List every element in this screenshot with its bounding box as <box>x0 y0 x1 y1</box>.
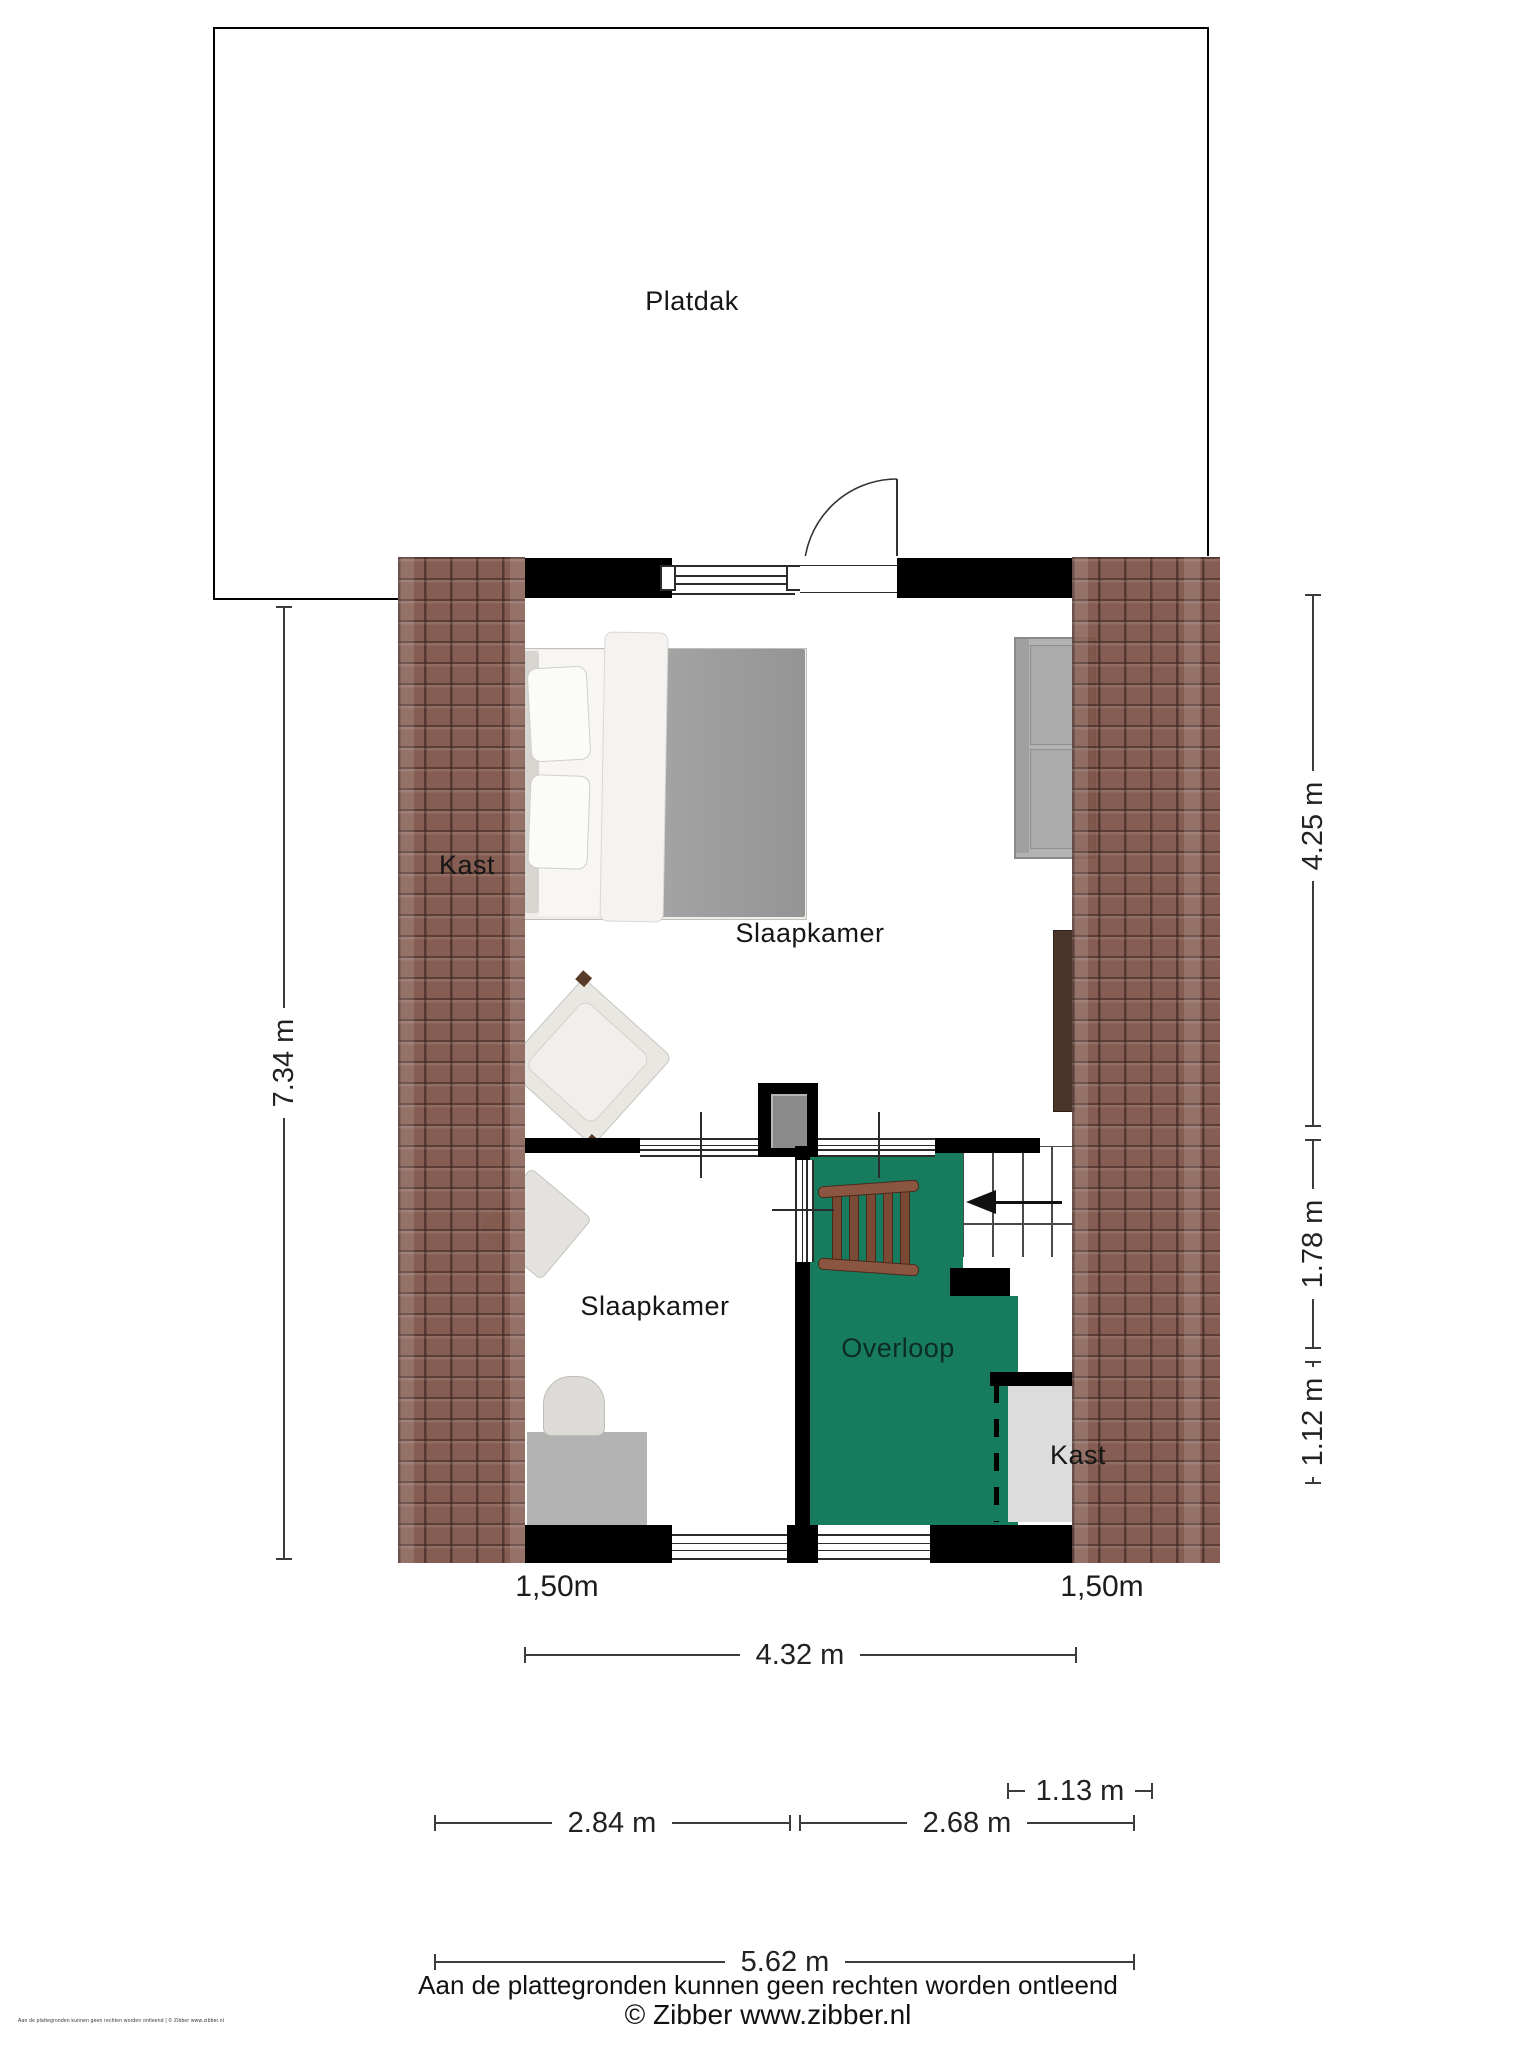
knee-height-right-label: 1,50m <box>1042 1570 1162 1604</box>
bottom-wall-pier <box>787 1525 818 1563</box>
desk-chair <box>543 1376 605 1436</box>
stair-direction-line <box>994 1201 1062 1204</box>
slaapkamer-bottom-label: Slaapkamer <box>555 1291 755 1322</box>
ladder-rung <box>883 1187 893 1269</box>
dim-tick <box>1305 1347 1321 1349</box>
overloop-wall-upper <box>795 1146 810 1160</box>
knee-height-left-label: 1,50m <box>497 1570 617 1604</box>
bottom-wall-right-segment <box>930 1525 1074 1563</box>
bed-pillow <box>527 665 592 762</box>
dim-tick <box>799 1815 801 1831</box>
dim-tick <box>1133 1815 1135 1831</box>
bed <box>523 648 807 920</box>
wall-tick <box>700 1112 702 1178</box>
overloop-label: Overloop <box>798 1333 998 1364</box>
overloop-wall-opening <box>795 1160 814 1262</box>
footer-micro-disclaimer: Aan de plattegronden kunnen geen rechten… <box>18 2018 224 2024</box>
bed-pillow <box>527 774 590 870</box>
interior-wall-right <box>935 1138 1040 1153</box>
dim-tick <box>276 606 292 608</box>
dim-tick <box>1151 1783 1153 1799</box>
top-wall-window <box>672 565 795 595</box>
dim-tick <box>276 1558 292 1560</box>
dim-tick <box>1133 1954 1135 1970</box>
kast-right-wall <box>990 1372 1074 1386</box>
loft-ladder <box>820 1178 915 1278</box>
sofa-backrest <box>1016 639 1029 853</box>
dim-tick <box>1075 1647 1077 1663</box>
stair-landing-line <box>964 1223 1074 1225</box>
dim-label-inner-width: 4.32 m <box>740 1639 860 1671</box>
interior-wall-opening <box>640 1138 758 1157</box>
desk <box>527 1432 647 1525</box>
top-wall-left-segment <box>525 558 672 598</box>
dim-tick <box>789 1815 791 1831</box>
bottom-wall-window-right <box>818 1534 930 1560</box>
dim-label-upper-height: 4.25 m <box>1297 771 1329 881</box>
dim-label-closet-width: 1.13 m <box>1025 1775 1135 1807</box>
kast-right-door-dashed <box>994 1385 999 1522</box>
platdak-outline-bottom <box>213 598 398 600</box>
ladder-rung <box>832 1187 842 1269</box>
ladder-rung <box>849 1187 859 1269</box>
dim-tick <box>434 1954 436 1970</box>
ladder-rung <box>866 1187 876 1269</box>
dim-tick <box>434 1815 436 1831</box>
interior-wall-left <box>525 1138 640 1153</box>
wall-tick <box>772 1209 834 1211</box>
top-wall-right-segment <box>897 558 1072 598</box>
kast-right-label: Kast <box>1028 1440 1128 1471</box>
kast-left-label: Kast <box>417 850 517 881</box>
platdak-label: Platdak <box>597 286 787 317</box>
dim-label-lower-height: 1.12 m <box>1297 1367 1329 1477</box>
dim-tick <box>1305 1482 1321 1484</box>
wall-tick <box>878 1112 880 1178</box>
footer-disclaimer: Aan de plattegronden kunnen geen rechten… <box>0 1970 1536 2001</box>
door-threshold <box>800 565 897 593</box>
dim-label-total-height: 7.34 m <box>268 1008 300 1118</box>
footer-copyright: © Zibber www.zibber.nl <box>0 1999 1536 2031</box>
dim-label-room-left-width: 2.84 m <box>552 1807 672 1839</box>
floorplan-canvas: Platdak <box>0 0 1536 2048</box>
dim-label-room-right-width: 2.68 m <box>907 1807 1027 1839</box>
bed-throw-blanket <box>599 631 668 922</box>
ladder-rung <box>900 1187 910 1269</box>
bottom-wall-left-segment <box>525 1525 672 1563</box>
overloop-wall-lower <box>795 1262 810 1525</box>
stairwell-stub-wall <box>950 1268 1010 1296</box>
bottom-wall-window-left <box>672 1534 787 1560</box>
chimney-flue <box>771 1094 807 1148</box>
roof-band-left <box>398 557 525 1563</box>
platdak-outline-left-lower <box>213 557 215 600</box>
slaapkamer-top-label: Slaapkamer <box>710 918 910 949</box>
dim-tick <box>1305 594 1321 596</box>
dim-tick <box>1305 1361 1321 1363</box>
interior-wall-opening <box>818 1138 935 1157</box>
roof-band-right <box>1072 557 1220 1563</box>
stair-direction-arrow-icon <box>966 1190 996 1214</box>
dim-label-middle-height: 1.78 m <box>1297 1189 1329 1299</box>
dim-tick <box>1305 1125 1321 1127</box>
dim-tick <box>1007 1783 1009 1799</box>
window-mullion <box>660 565 676 591</box>
dim-tick <box>1305 1139 1321 1141</box>
dim-tick <box>524 1647 526 1663</box>
